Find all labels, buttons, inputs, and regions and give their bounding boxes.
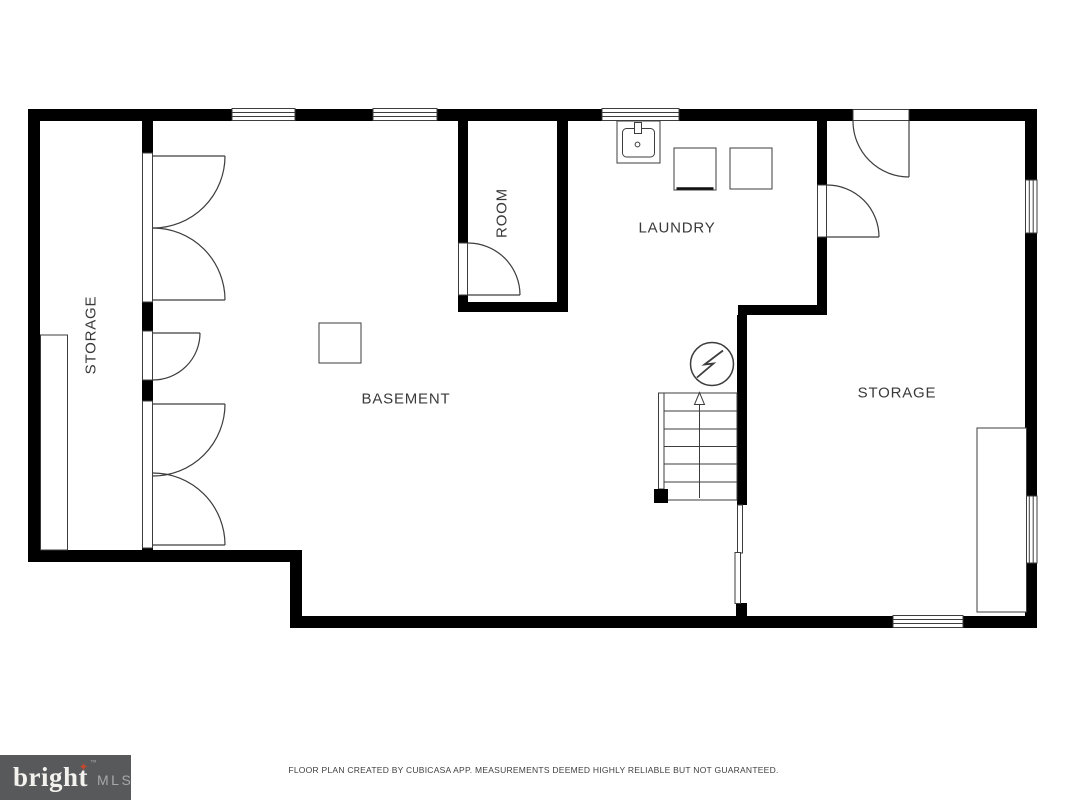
room-label-room: ROOM xyxy=(494,188,511,238)
bright-mls-logo: bright ✦ ™ MLS xyxy=(0,755,131,800)
wall-stairs-stub xyxy=(736,603,747,616)
door-opening xyxy=(143,153,153,302)
door-swings-layer xyxy=(153,121,909,545)
stairs-newel-post xyxy=(654,489,668,503)
electrical-panel-icon xyxy=(691,343,734,386)
door-opening xyxy=(143,401,153,548)
room-label-storage-right: STORAGE xyxy=(858,385,937,402)
wall-divider-left-b xyxy=(142,302,153,331)
stairs-stringer xyxy=(659,393,665,489)
room-label-storage-left: STORAGE xyxy=(83,296,100,375)
top-door-icon xyxy=(853,121,909,177)
single-door-icon xyxy=(153,333,200,380)
stairs-icon xyxy=(654,393,737,504)
window-icon xyxy=(232,109,295,121)
washer-icon xyxy=(674,148,716,190)
wall-laundry-divider-a xyxy=(817,121,827,185)
wall-left xyxy=(28,121,40,550)
door-opening xyxy=(143,331,153,380)
shelf-left xyxy=(41,335,68,550)
window-icon xyxy=(602,109,679,121)
logo-star-icon: ✦ xyxy=(78,761,89,773)
wall-divider-left-d xyxy=(142,548,153,562)
wall-divider-left-a xyxy=(142,121,153,153)
room-label-basement: BASEMENT xyxy=(362,391,451,408)
support-post xyxy=(319,323,361,363)
door-openings-layer xyxy=(143,110,910,549)
floor-plan-canvas: STORAGE BASEMENT ROOM LAUNDRY STORAGE FL… xyxy=(0,0,1067,800)
logo-trademark: ™ xyxy=(91,760,98,766)
wall-room-bottom xyxy=(458,302,568,312)
door-opening xyxy=(459,243,468,295)
stair-railing xyxy=(735,505,743,604)
shelf-right xyxy=(977,428,1027,612)
wall-stairs xyxy=(737,315,747,505)
wall-lower-left xyxy=(28,550,302,562)
dryer-icon xyxy=(730,148,772,189)
sink-icon xyxy=(617,121,660,163)
double-door-icon xyxy=(153,404,225,545)
fixtures-layer xyxy=(41,121,1027,612)
windows-layer xyxy=(232,109,1037,628)
wall-room-right xyxy=(557,121,568,312)
laundry-door-icon xyxy=(827,185,879,237)
double-door-icon xyxy=(153,156,225,300)
wall-laundry-divider-b xyxy=(817,237,827,315)
logo-mls-text: MLS xyxy=(97,772,133,788)
wall-laundry-bottom xyxy=(738,305,827,315)
logo-brand-text: bright ✦ ™ xyxy=(13,755,88,800)
door-opening xyxy=(818,185,827,237)
window-icon xyxy=(1026,496,1038,563)
wall-divider-left-c xyxy=(142,380,153,401)
room-label-laundry: LAUNDRY xyxy=(638,220,715,237)
walls-layer xyxy=(28,109,1037,628)
window-icon xyxy=(1026,180,1038,233)
window-icon xyxy=(373,109,437,121)
disclaimer-text: FLOOR PLAN CREATED BY CUBICASA APP. MEAS… xyxy=(0,765,1067,775)
door-opening xyxy=(853,110,909,121)
logo-brand-word: bright xyxy=(13,762,88,792)
wall-room-left-a xyxy=(458,121,468,243)
room-door-icon xyxy=(468,243,520,295)
window-icon xyxy=(893,616,963,628)
